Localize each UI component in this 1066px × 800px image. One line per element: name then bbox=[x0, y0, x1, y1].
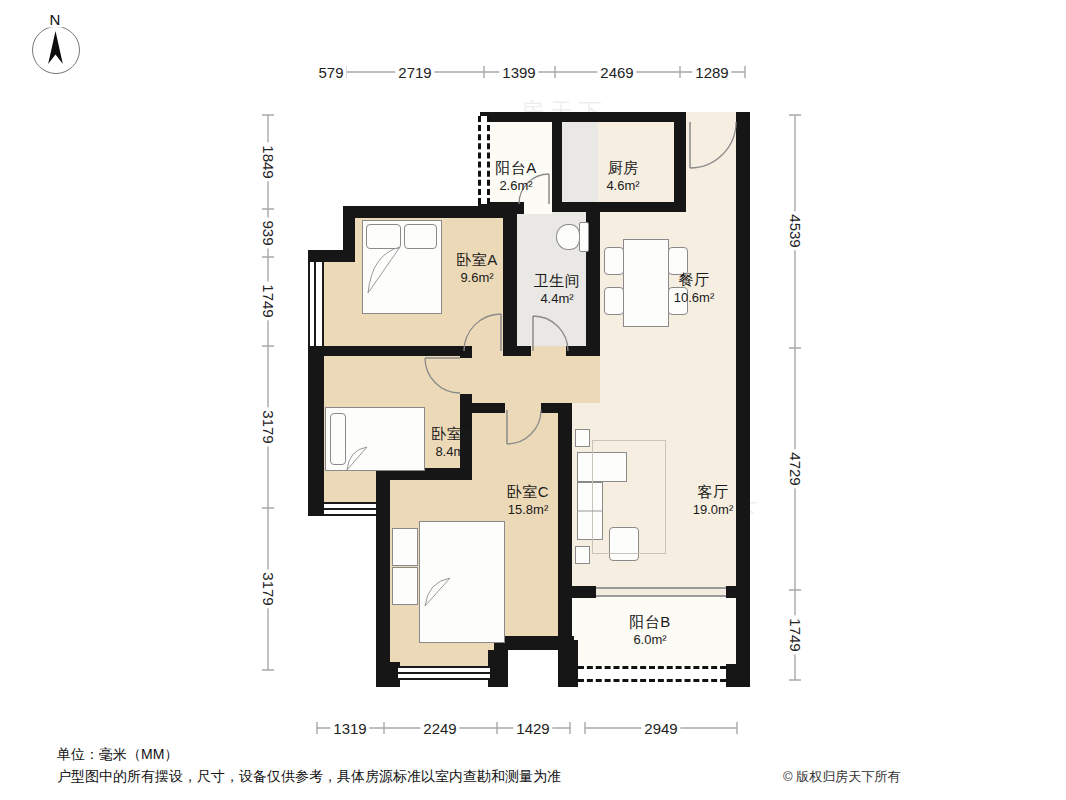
dim-bottom-1: 1319 bbox=[330, 720, 369, 737]
dim-right-2: 4729 bbox=[787, 449, 804, 488]
wall-bathroom-left bbox=[503, 202, 517, 346]
wall-bedroom-ab-divider bbox=[308, 346, 466, 356]
dim-left-3: 1749 bbox=[260, 281, 277, 320]
dim-left-2: 939 bbox=[260, 217, 277, 248]
dim-bottom-2: 2249 bbox=[420, 720, 459, 737]
room-label-balcony-a: 阳台A 2.6m² bbox=[495, 158, 537, 194]
floor-door-gap-bedroom-b bbox=[460, 358, 472, 394]
room-label-dining: 餐厅 10.6m² bbox=[674, 270, 714, 306]
room-area: 15.8m² bbox=[507, 501, 549, 518]
wall-balcony-a-kitchen bbox=[552, 122, 562, 204]
wall-bedroom-c-living bbox=[558, 403, 572, 650]
wall-living-balcony-left bbox=[558, 586, 596, 598]
room-area: 6.0m² bbox=[629, 631, 671, 648]
room-area: 10.6m² bbox=[674, 289, 714, 306]
wall-living-balcony-right bbox=[726, 586, 738, 598]
room-label-bedroom-a: 卧室A 9.6m² bbox=[456, 250, 498, 286]
room-name: 厨房 bbox=[606, 158, 639, 178]
dim-top-3: 1399 bbox=[499, 64, 538, 81]
floor-door-gap-balcony-a bbox=[524, 202, 552, 214]
room-label-balcony-b: 阳台B 6.0m² bbox=[629, 612, 671, 648]
rug bbox=[592, 440, 666, 554]
toilet-tank bbox=[579, 222, 589, 252]
wardrobe bbox=[392, 567, 418, 605]
dashed-wall-balcony-a bbox=[478, 116, 490, 204]
wall-bathroom-bottom-left bbox=[503, 346, 531, 356]
floor-bedroom-b-nook bbox=[324, 480, 378, 504]
copyright: © 版权归房天下所有 bbox=[783, 768, 900, 786]
wall-left bbox=[308, 346, 324, 516]
room-label-bathroom: 卫生间 4.4m² bbox=[534, 271, 581, 307]
wall-bedroom-c-bottom-right-corner bbox=[488, 650, 508, 687]
side-table bbox=[575, 429, 590, 447]
dim-left-5: 3179 bbox=[260, 569, 277, 608]
wall-step bbox=[308, 250, 355, 262]
dim-right-3: 1749 bbox=[787, 615, 804, 654]
pillow bbox=[366, 224, 401, 249]
wall-bedroom-c-left bbox=[376, 468, 390, 687]
wall-bedroom-a-top bbox=[343, 206, 505, 218]
dining-table bbox=[623, 239, 669, 327]
toilet-icon bbox=[556, 224, 580, 250]
dim-top-2: 2719 bbox=[395, 64, 434, 81]
room-name: 餐厅 bbox=[674, 270, 714, 290]
room-area: 8.4m² bbox=[431, 443, 473, 460]
room-name: 阳台A bbox=[495, 158, 537, 178]
room-name: 阳台B bbox=[629, 612, 671, 632]
floor-door-gap-bathroom bbox=[531, 346, 566, 358]
floor-bedroom-a-left bbox=[322, 262, 346, 348]
room-area: 19.0m² bbox=[693, 501, 733, 518]
room-name: 卧室C bbox=[507, 482, 549, 502]
room-area: 9.6m² bbox=[456, 269, 498, 286]
room-area: 4.4m² bbox=[534, 290, 581, 307]
room-area: 4.6m² bbox=[606, 177, 639, 194]
room-label-bedroom-c: 卧室C 15.8m² bbox=[507, 482, 549, 518]
room-label-living: 客厅 19.0m² bbox=[693, 482, 733, 518]
dim-bottom-3: 1429 bbox=[513, 720, 552, 737]
room-label-bedroom-b: 卧室B 8.4m² bbox=[431, 424, 473, 460]
window-bedroom-c bbox=[398, 666, 490, 680]
dining-chair bbox=[604, 247, 624, 275]
wall-kitchen-right bbox=[674, 122, 686, 208]
disclaimer: 户型图中的所有摆设，尺寸，设备仅供参考，具体房源标准以室内查勘和测量为准 bbox=[57, 768, 561, 786]
floorplan-canvas: N 房天下 房天下 bbox=[0, 0, 1066, 800]
room-name: 卧室B bbox=[431, 424, 473, 444]
dim-right-1: 4539 bbox=[787, 211, 804, 250]
room-name: 卫生间 bbox=[534, 271, 581, 291]
wall-balcony-b-bottom-right-corner bbox=[726, 664, 750, 687]
dashed-wall-balcony-b bbox=[578, 666, 726, 682]
window-bedroom-b bbox=[324, 502, 376, 516]
wall-bedroom-c-top-left bbox=[472, 403, 505, 413]
dim-left-4: 3179 bbox=[260, 407, 277, 446]
room-name: 客厅 bbox=[693, 482, 733, 502]
wall-kitchen-bottom bbox=[552, 202, 686, 212]
bed-bedroom-c bbox=[419, 521, 505, 643]
dining-chair bbox=[604, 287, 624, 315]
dim-top-1: 579 bbox=[315, 64, 346, 81]
room-label-kitchen: 厨房 4.6m² bbox=[606, 158, 639, 194]
dim-left-1: 1849 bbox=[260, 142, 277, 181]
pillow bbox=[330, 413, 346, 465]
dim-top-5: 1289 bbox=[692, 64, 731, 81]
wall-bedroom-c-bottom-left-corner bbox=[376, 662, 400, 687]
north-label: N bbox=[48, 11, 63, 28]
sliding-door-balcony-b bbox=[596, 587, 726, 597]
side-table bbox=[575, 546, 590, 564]
room-name: 卧室A bbox=[456, 250, 498, 270]
wall-right bbox=[736, 112, 750, 687]
wall-balcony-b-left bbox=[558, 640, 578, 687]
dim-top-4: 2469 bbox=[597, 64, 636, 81]
floor-hall-opening bbox=[572, 355, 600, 403]
wardrobe bbox=[392, 528, 418, 566]
wall-top bbox=[480, 112, 686, 122]
wall-bathroom-bottom-right bbox=[566, 346, 600, 356]
room-area: 2.6m² bbox=[495, 177, 537, 194]
pillow bbox=[404, 224, 437, 249]
window-bedroom-a bbox=[308, 262, 324, 346]
dim-bottom-4: 2949 bbox=[641, 720, 680, 737]
wall-bedroom-b-right-jamb bbox=[460, 346, 472, 358]
unit-note: 单位：毫米（MM） bbox=[57, 746, 178, 764]
